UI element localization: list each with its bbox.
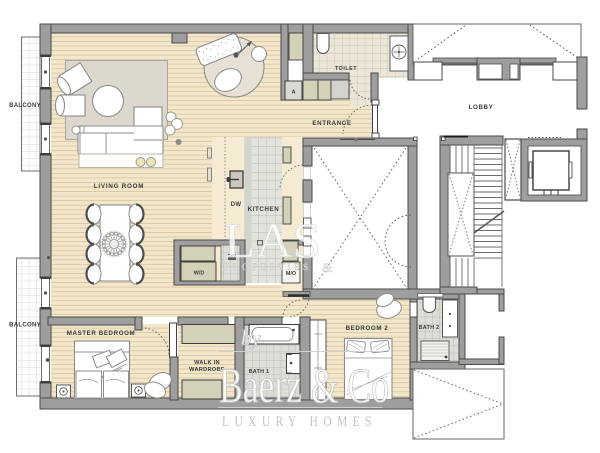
svg-text:PROPERTIES: PROPERTIES [224, 263, 311, 273]
svg-text:DW: DW [231, 202, 242, 208]
svg-text:A: A [291, 90, 295, 96]
svg-text:BALCONY: BALCONY [9, 323, 41, 329]
svg-text:ENTRANCE: ENTRANCE [312, 120, 351, 127]
svg-text:by: by [241, 326, 262, 350]
svg-text:Baerz & Co: Baerz & Co [219, 357, 389, 413]
svg-text:LIVING ROOM: LIVING ROOM [94, 183, 144, 190]
svg-text:WALK IN: WALK IN [194, 360, 220, 366]
svg-text:BALCONY: BALCONY [9, 103, 41, 109]
svg-text:TOILET: TOILET [335, 66, 357, 72]
svg-text:LOBBY: LOBBY [469, 104, 494, 111]
svg-text:LAS: LAS [224, 212, 321, 268]
svg-text:LUXURY HOMES: LUXURY HOMES [222, 414, 377, 430]
svg-text:BATH 2: BATH 2 [419, 325, 440, 331]
svg-text:BEDROOM 2: BEDROOM 2 [346, 325, 389, 332]
svg-text:&: & [322, 260, 332, 275]
svg-text:MASTER BEDROOM: MASTER BEDROOM [67, 330, 136, 337]
svg-text:W/D: W/D [194, 271, 205, 277]
